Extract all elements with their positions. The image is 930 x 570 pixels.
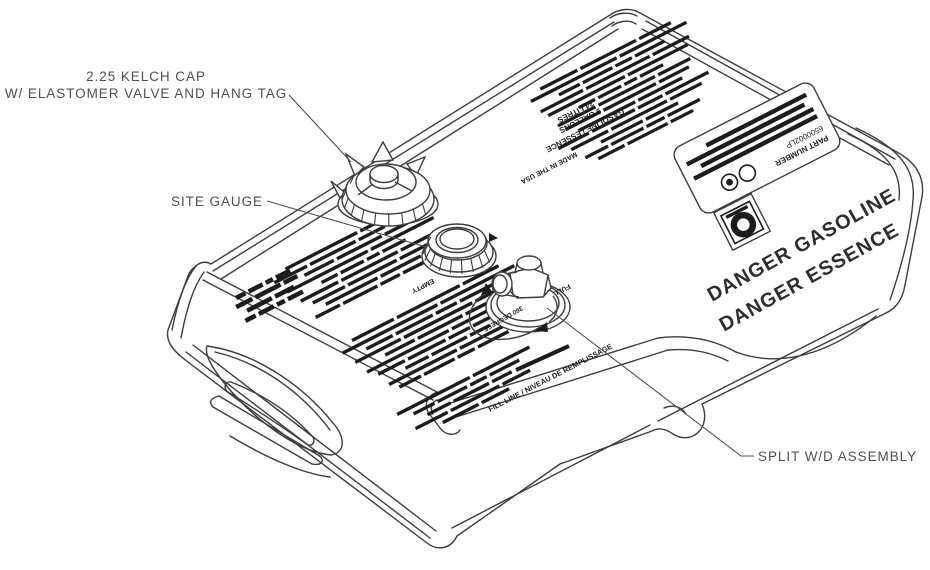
callout-site-gauge: SITE GAUGE bbox=[171, 194, 263, 209]
callout-split-wd: SPLIT W/D ASSEMBLY bbox=[758, 449, 917, 464]
callout-kelch-cap-line1: 2.25 KELCH CAP bbox=[86, 69, 206, 84]
callout-kelch-cap-line2: W/ ELASTOMER VALVE AND HANG TAG bbox=[5, 86, 287, 101]
leader-kelch-cap bbox=[289, 95, 351, 162]
diagram-page: GASOLINE / ESSENCE 9 GALLONS 34 LITRES M… bbox=[0, 0, 930, 570]
fuel-tank-diagram: GASOLINE / ESSENCE 9 GALLONS 34 LITRES M… bbox=[0, 0, 930, 570]
